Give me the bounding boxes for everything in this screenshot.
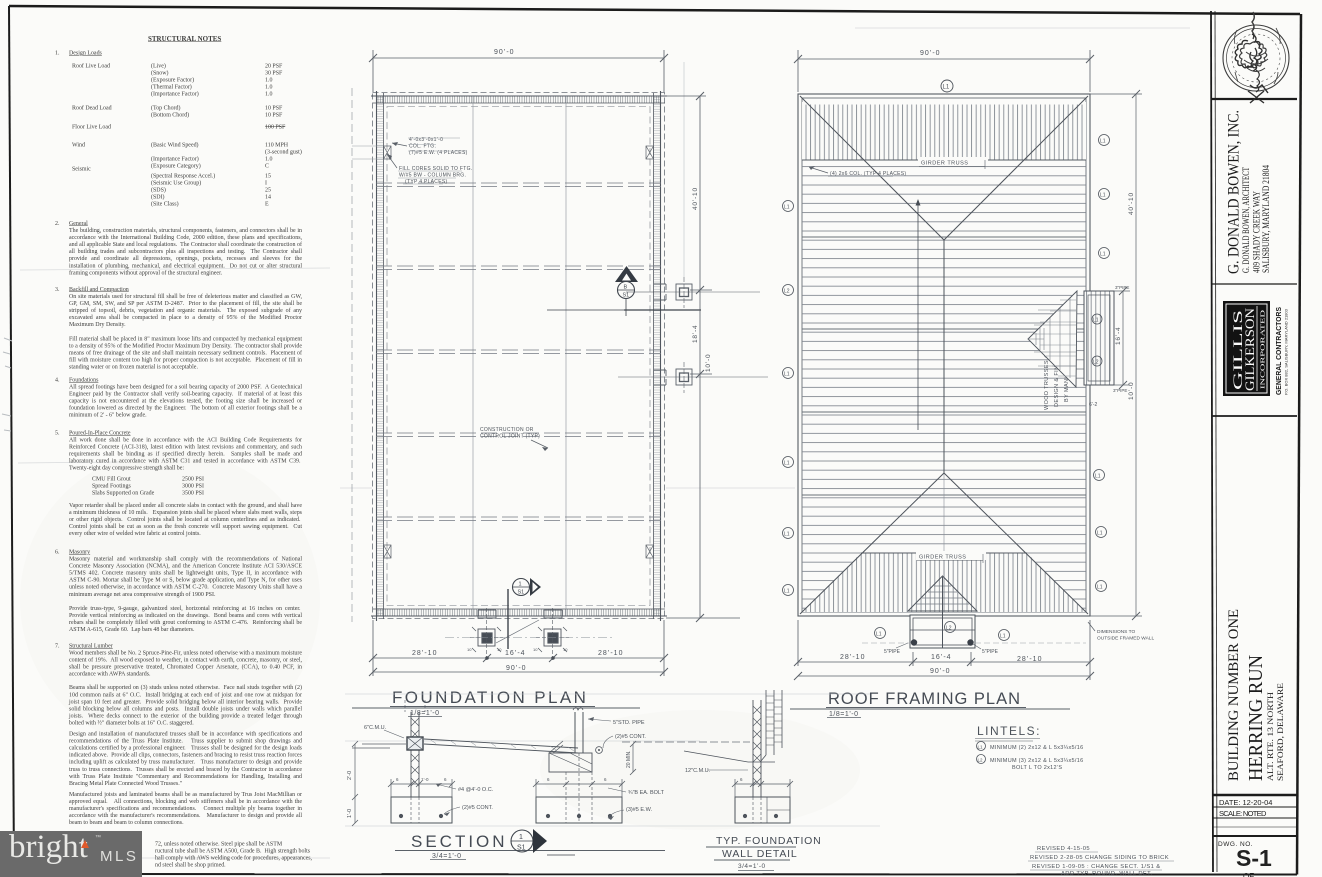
- svg-text:L1: L1: [784, 205, 790, 211]
- svg-text:OUTSIDE FRAMED WALL: OUTSIDE FRAMED WALL: [1097, 636, 1154, 642]
- svg-text:DIMENSIONS TO: DIMENSIONS TO: [1097, 629, 1135, 635]
- svg-text:5"PIPE: 5"PIPE: [884, 649, 901, 655]
- svg-text:10: 10: [563, 647, 568, 652]
- svg-text:LINTELS:: LINTELS:: [977, 724, 1041, 738]
- svg-text:16’-4: 16’-4: [1115, 327, 1122, 345]
- svg-text:GIRDER TRUSS: GIRDER TRUSS: [919, 555, 966, 561]
- svg-text:L1: L1: [1000, 634, 1006, 640]
- svg-text:28’-10: 28’-10: [598, 650, 623, 657]
- svg-text:6"C.M.U.: 6"C.M.U.: [364, 725, 387, 731]
- svg-text:ROOF FRAMING PLAN: ROOF FRAMING PLAN: [828, 690, 1021, 708]
- svg-text:90’-0: 90’-0: [494, 49, 515, 56]
- svg-text:10’-0: 10’-0: [1128, 382, 1135, 400]
- svg-text:6’-2: 6’-2: [1089, 402, 1098, 408]
- svg-text:WALL DETAIL: WALL DETAIL: [722, 848, 798, 860]
- svg-text:3"PIPE: 3"PIPE: [1115, 285, 1129, 290]
- svg-text:6: 6: [444, 777, 447, 782]
- svg-text:FOUNDATION PLAN: FOUNDATION PLAN: [392, 688, 588, 707]
- svg-text:L2: L2: [978, 758, 984, 763]
- svg-text:1/8=1’-0: 1/8=1’-0: [829, 711, 859, 718]
- svg-text:12"C.M.U.: 12"C.M.U.: [685, 768, 711, 774]
- svg-text:10: 10: [467, 647, 472, 652]
- svg-text:REVISED 1-09-05 : CHANGE SEC: REVISED 1-09-05 : CHANGE SECT. 1/S1 &: [1032, 864, 1161, 870]
- svg-text:S1: S1: [518, 590, 525, 596]
- svg-text:90’-0: 90’-0: [920, 50, 941, 57]
- svg-text:REVISED 4-15-05: REVISED 4-15-05: [1037, 846, 1090, 852]
- svg-text:16’-4: 16’-4: [931, 654, 952, 661]
- svg-text:L1: L1: [1100, 139, 1106, 145]
- svg-text:MINIMUM (3) 2x12 & L 5x3¼x5/16: MINIMUM (3) 2x12 & L 5x3¼x5/16: [990, 758, 1083, 764]
- svg-text:28’-10: 28’-10: [840, 654, 865, 661]
- svg-text:10’-0: 10’-0: [705, 354, 712, 372]
- svg-text:20 MIN.: 20 MIN.: [626, 750, 632, 768]
- svg-text:1: 1: [519, 834, 523, 841]
- svg-text:L1: L1: [978, 745, 984, 750]
- svg-text:L1: L1: [784, 461, 790, 467]
- svg-text:(4) 2x6 COL. (TYP 4 PLACES): (4) 2x6 COL. (TYP 4 PLACES): [830, 171, 906, 177]
- svg-text:L1: L1: [784, 589, 790, 595]
- svg-text:3"PIPE: 3"PIPE: [1113, 388, 1127, 393]
- svg-text:90’-0: 90’-0: [506, 665, 527, 672]
- svg-text:1’-0: 1’-0: [421, 777, 429, 782]
- svg-text:2’-0: 2’-0: [347, 771, 353, 780]
- svg-text:1: 1: [519, 582, 522, 588]
- svg-text:10: 10: [533, 647, 538, 652]
- svg-text:5"STD. PIPE: 5"STD. PIPE: [613, 720, 645, 726]
- svg-text:ADD TYP. ROUND. WALL DET.: ADD TYP. ROUND. WALL DET.: [1061, 871, 1153, 877]
- svg-text:(2)#5 CONT.: (2)#5 CONT.: [615, 734, 646, 740]
- svg-text:L1: L1: [1095, 474, 1101, 480]
- svg-text:S1: S1: [623, 293, 630, 299]
- svg-text:GIRDER TRUSS: GIRDER TRUSS: [921, 161, 968, 167]
- svg-text:3/4=1’-0: 3/4=1’-0: [738, 863, 766, 870]
- svg-text:L1: L1: [943, 85, 950, 91]
- svg-text:CONSTRUCTION OR: CONSTRUCTION OR: [480, 427, 534, 433]
- svg-text:28’-10: 28’-10: [412, 650, 437, 657]
- svg-text:40’-10: 40’-10: [1128, 192, 1135, 215]
- svg-text:BOLT L TO 2x12’S: BOLT L TO 2x12’S: [1012, 765, 1062, 771]
- svg-text:L2: L2: [784, 289, 790, 295]
- svg-text:6: 6: [396, 777, 399, 782]
- svg-text:L1: L1: [1100, 193, 1106, 199]
- svg-text:L1: L1: [784, 532, 790, 538]
- svg-text:S1: S1: [517, 845, 526, 852]
- svg-text:MINIMUM (2) 2x12 & L 5x3¼x5/16: MINIMUM (2) 2x12 & L 5x3¼x5/16: [990, 745, 1083, 751]
- svg-text:CONTROL JOINT (TYP): CONTROL JOINT (TYP): [480, 434, 540, 440]
- svg-text:L1: L1: [784, 372, 790, 378]
- svg-text:L1: L1: [1097, 585, 1103, 591]
- svg-text:90’-0: 90’-0: [930, 668, 951, 675]
- svg-text:TYP. FOUNDATION: TYP. FOUNDATION: [716, 835, 822, 847]
- svg-text:L2: L2: [946, 626, 952, 632]
- svg-text:16’-4: 16’-4: [505, 650, 526, 657]
- svg-text:B: B: [624, 285, 628, 291]
- svg-text:1’-0: 1’-0: [347, 809, 353, 818]
- svg-text:W/#5 BW - COLUMN BRG.: W/#5 BW - COLUMN BRG.: [399, 173, 466, 179]
- svg-text:L1: L1: [1097, 531, 1103, 537]
- svg-text:#4 @4’-0 O.C.: #4 @4’-0 O.C.: [458, 787, 494, 793]
- svg-text:L1: L1: [1100, 252, 1106, 258]
- svg-text:L2: L2: [1093, 360, 1099, 366]
- svg-text:L1: L1: [1093, 318, 1099, 324]
- svg-text:40’-10: 40’-10: [692, 187, 699, 210]
- svg-text:(3)#5 E.W.: (3)#5 E.W.: [626, 807, 652, 813]
- svg-text:(2)#5 CONT.: (2)#5 CONT.: [462, 805, 493, 811]
- svg-text:¾”B EA. BOLT: ¾”B EA. BOLT: [628, 790, 665, 796]
- svg-text:18’-4: 18’-4: [692, 325, 699, 343]
- svg-text:REVISED 2-28-05 CHANGE SIDIN: REVISED 2-28-05 CHANGE SIDING TO BRICK: [1030, 855, 1169, 861]
- svg-text:5"PIPE: 5"PIPE: [982, 649, 999, 655]
- svg-text:L1: L1: [876, 632, 882, 638]
- svg-text:28’-10: 28’-10: [1017, 656, 1042, 663]
- svg-text:10: 10: [497, 647, 502, 652]
